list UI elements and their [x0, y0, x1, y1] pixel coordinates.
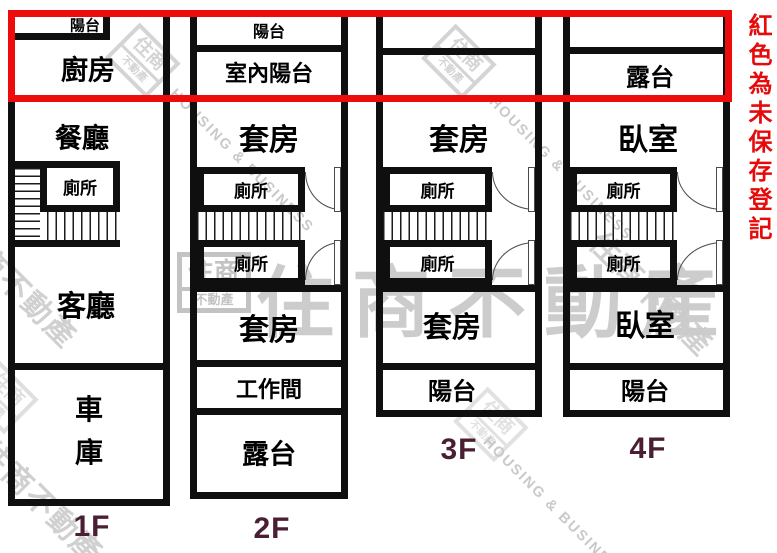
room-label-bedroom-upper: 臥室: [618, 115, 678, 159]
door-leaf: [716, 167, 723, 212]
room-label-bedroom-lower: 臥室: [615, 301, 675, 345]
room-label-toilet-upper-3f: 廁所: [421, 177, 455, 202]
floor-label-1f: 1F: [73, 510, 110, 544]
wall: [197, 408, 341, 415]
door-leaf: [528, 167, 535, 212]
floorplan-canvas: 住商 不動產 住商不動產 住商 不動產 住商 不動產 住商 不動產 住商 不動產…: [0, 0, 777, 553]
wall: [15, 240, 120, 247]
diagonal-brand-en-watermark: HOUSING & BUSINESS: [480, 434, 630, 553]
room-label-toilet-lower-2f: 廁所: [234, 250, 268, 275]
room-label-garage: 車庫: [71, 388, 107, 475]
room-label-suite-lower-2f: 套房: [239, 305, 299, 349]
wall: [570, 285, 723, 292]
stairs: [383, 212, 492, 240]
door-leaf: [334, 240, 341, 285]
room-label-toilet-lower-4f: 廁所: [607, 250, 641, 275]
stairs: [47, 212, 120, 240]
toilet-room: 廁所: [197, 167, 305, 212]
door-leaf: [334, 167, 341, 212]
floor-label-3f: 3F: [440, 433, 477, 467]
toilet-room: 廁所: [383, 167, 492, 212]
wall: [197, 285, 341, 292]
room-label-toilet-1f: 廁所: [63, 174, 97, 199]
room-label-suite-lower-3f: 套房: [423, 304, 481, 346]
stairs: [197, 212, 305, 240]
wall: [197, 360, 341, 367]
room-label-toilet-upper-4f: 廁所: [607, 177, 641, 202]
door-leaf: [528, 240, 535, 285]
room-label-balcony-4f: 陽台: [621, 372, 669, 407]
room-label-living: 客廳: [57, 283, 115, 325]
floor-label-2f: 2F: [253, 512, 290, 546]
door-leaf: [716, 240, 723, 285]
room-label-suite-upper-2f: 套房: [239, 115, 299, 159]
room-label-workroom: 工作間: [236, 372, 302, 404]
red-note-vertical: 紅色為未保存登記: [740, 13, 775, 245]
room-label-dining: 餐廳: [55, 117, 109, 156]
room-label-suite-upper-3f: 套房: [429, 115, 489, 159]
room-label-toilet-upper-2f: 廁所: [234, 177, 268, 202]
toilet-room: 廁所: [570, 167, 677, 212]
room-label-toilet-lower-3f: 廁所: [421, 250, 455, 275]
stairs: [15, 168, 40, 240]
wall: [570, 363, 723, 370]
toilet-room: 廁所: [383, 240, 492, 285]
toilet-room: 廁所: [570, 240, 677, 285]
wall: [383, 363, 535, 370]
toilet-room: 廁所: [40, 161, 120, 212]
room-label-balcony-3f: 陽台: [428, 372, 476, 407]
room-label-terrace-2f: 露台: [242, 433, 296, 472]
unregistered-area-highlight-box: [8, 10, 732, 102]
toilet-room: 廁所: [197, 240, 305, 285]
stairs: [570, 212, 677, 240]
floor-label-4f: 4F: [629, 432, 666, 466]
wall: [383, 285, 535, 292]
wall: [15, 363, 163, 370]
